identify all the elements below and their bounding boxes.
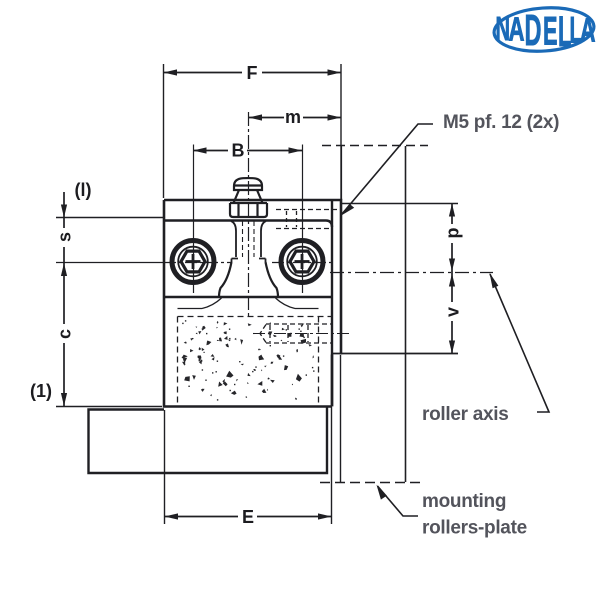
svg-text:p: p	[443, 228, 463, 239]
svg-text:A: A	[509, 11, 525, 48]
svg-text:(l): (l)	[75, 180, 92, 200]
svg-text:c: c	[55, 329, 75, 339]
svg-text:B: B	[232, 141, 245, 161]
svg-text:(1): (1)	[30, 381, 52, 401]
svg-text:s: s	[55, 232, 75, 242]
svg-text:rollers-plate: rollers-plate	[422, 518, 527, 539]
svg-text:E: E	[242, 507, 254, 527]
svg-text:F: F	[247, 63, 258, 83]
svg-text:E: E	[543, 10, 558, 54]
svg-text:M5 pf. 12 (2x): M5 pf. 12 (2x)	[443, 112, 559, 133]
svg-text:mounting: mounting	[422, 491, 506, 512]
svg-text:m: m	[285, 107, 301, 127]
svg-text:D: D	[525, 6, 542, 55]
svg-text:A: A	[580, 12, 596, 49]
svg-text:v: v	[443, 307, 463, 317]
svg-text:roller axis: roller axis	[422, 404, 508, 425]
